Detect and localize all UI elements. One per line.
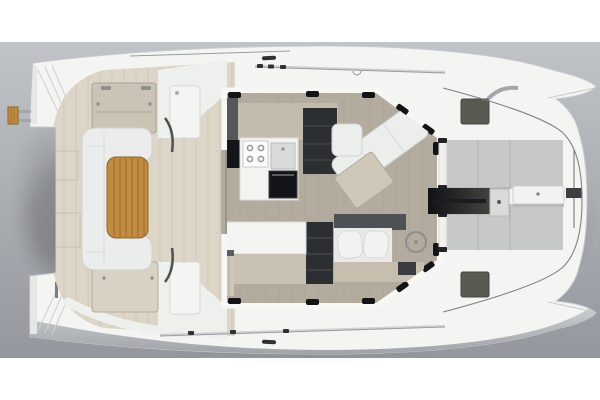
lid-knob	[497, 200, 501, 204]
anchor-roller	[566, 188, 582, 198]
panel-hinge-1	[101, 86, 111, 90]
nav-pillow-2	[363, 230, 389, 259]
aft-module	[170, 262, 200, 314]
panel-screw	[150, 276, 153, 279]
panel-screw	[148, 102, 151, 105]
teak-step	[8, 107, 18, 124]
locker-button	[536, 192, 539, 195]
boat-plan-rendering	[0, 0, 600, 400]
panel-screw	[96, 102, 99, 105]
nav-pillow-1	[337, 230, 364, 259]
cockpit-panel-top	[92, 83, 156, 133]
helm-module-logo	[175, 91, 179, 95]
grab-rail-top	[439, 141, 446, 187]
helm-module	[170, 86, 200, 138]
shelving-bottom	[303, 222, 333, 284]
deck-hatch-bottom	[461, 272, 489, 297]
nav-instrument	[398, 262, 416, 275]
grab-rail-bottom	[439, 215, 446, 249]
stove-top	[243, 141, 268, 167]
cleat-bottom	[262, 340, 276, 345]
aft-cockpit	[52, 60, 235, 340]
cockpit-table	[107, 157, 148, 238]
locker-shadow	[513, 204, 564, 207]
panel-hinge-2	[141, 86, 151, 90]
galley-sink	[271, 143, 295, 169]
sunpad-bottom	[447, 214, 563, 250]
faucet	[281, 147, 284, 150]
screenshot-root	[0, 0, 600, 400]
deck-hatch-top	[461, 99, 489, 124]
sunpad-top	[447, 140, 563, 188]
top-white-band	[0, 0, 600, 42]
bottom-white-band	[0, 358, 600, 400]
helm-wheel-hub	[414, 240, 418, 244]
panel-screw	[102, 276, 105, 279]
platform-arm-1	[18, 110, 31, 113]
bottom-transom-face	[30, 276, 37, 334]
windlass-track	[432, 199, 486, 203]
salon-chaise	[332, 124, 362, 156]
cleat-top	[262, 56, 276, 61]
platform-arm-2	[18, 119, 31, 122]
salon	[196, 90, 439, 310]
nav-seat-back	[334, 214, 406, 230]
